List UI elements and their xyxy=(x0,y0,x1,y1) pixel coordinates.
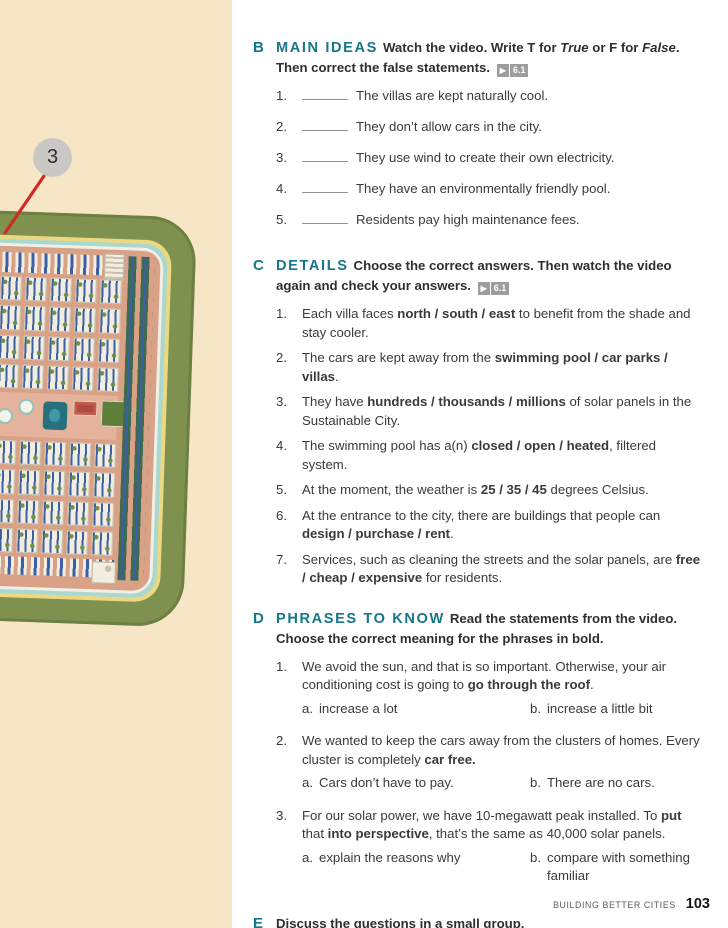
option-b[interactable]: b.There are no cars. xyxy=(530,774,702,793)
villa-cluster xyxy=(98,338,120,363)
option-a[interactable]: a.Cars don’t have to pay. xyxy=(302,774,530,793)
sports-court-icon xyxy=(73,400,98,416)
item-number: 6. xyxy=(276,507,302,544)
map-corner-building xyxy=(91,561,116,584)
biodome-icon xyxy=(0,408,13,425)
option-a[interactable]: a.increase a lot xyxy=(302,700,530,719)
options-row: a.explain the reasons why b.compare with… xyxy=(302,849,702,886)
true-false-item: 1. The villas are kept naturally cool. xyxy=(276,87,702,106)
answer-blank[interactable] xyxy=(302,151,348,162)
map-interior xyxy=(0,245,161,591)
item-statement: We avoid the sun, and that is so importa… xyxy=(302,659,666,693)
options-row: a.increase a lot b.increase a little bit xyxy=(302,700,702,719)
true-false-item: 5. Residents pay high maintenance fees. xyxy=(276,211,702,230)
villa-cluster xyxy=(19,441,41,466)
item-text: They have hundreds / thousands / million… xyxy=(302,393,702,430)
villa-cluster xyxy=(66,530,88,555)
illustration-panel: 3 xyxy=(0,0,232,928)
villa-cluster xyxy=(68,472,90,497)
play-icon: ▶ xyxy=(497,64,509,77)
multiple-choice-item: 6. At the entrance to the city, there ar… xyxy=(276,507,702,544)
item-text: At the moment, the weather is 25 / 35 / … xyxy=(302,481,702,500)
true-false-item: 4. They have an environmentally friendly… xyxy=(276,180,702,199)
villa-cluster xyxy=(99,309,121,334)
answer-blank[interactable] xyxy=(302,182,348,193)
item-text: They don’t allow cars in the city. xyxy=(356,119,542,134)
answer-blank[interactable] xyxy=(302,213,348,224)
villa-grid-bottom xyxy=(0,439,116,556)
phrase-item: 2. We wanted to keep the cars away from … xyxy=(276,732,702,802)
item-number: 2. xyxy=(276,732,302,802)
item-text: The cars are kept away from the swimming… xyxy=(302,349,702,386)
option-b[interactable]: b.compare with something familiar xyxy=(530,849,702,886)
sustainable-city-map xyxy=(0,209,197,628)
true-false-item: 2. They don’t allow cars in the city. xyxy=(276,118,702,137)
item-number: 4. xyxy=(276,437,302,474)
villa-cluster xyxy=(94,443,116,468)
item-text: They use wind to create their own electr… xyxy=(356,150,615,165)
section-letter: B xyxy=(253,38,276,256)
item-number: 4. xyxy=(276,180,302,199)
answer-blank[interactable] xyxy=(302,120,348,131)
villa-cluster xyxy=(75,278,97,303)
item-text: They have an environmentally friendly po… xyxy=(356,181,610,196)
option-b[interactable]: b.increase a little bit xyxy=(530,700,702,719)
section-instructions: Discuss the questions in a small group. xyxy=(276,916,524,928)
textbook-page: 3 B MAIN IDEASWatch the video. Write T f… xyxy=(0,0,728,928)
villa-cluster xyxy=(0,305,21,330)
map-gate-building xyxy=(104,253,125,280)
villa-cluster xyxy=(49,307,71,332)
villa-cluster xyxy=(0,498,14,523)
villa-cluster xyxy=(24,306,46,331)
villa-cluster xyxy=(69,442,91,467)
phrase-item: 3. For our solar power, we have 10-megaw… xyxy=(276,807,702,895)
villa-cluster xyxy=(43,471,65,496)
villa-cluster xyxy=(0,276,22,301)
item-number: 5. xyxy=(276,211,302,230)
item-number: 1. xyxy=(276,87,302,106)
item-statement: We wanted to keep the cars away from the… xyxy=(302,733,700,767)
villa-cluster xyxy=(16,528,38,553)
item-number: 1. xyxy=(276,305,302,342)
villa-cluster xyxy=(0,527,13,552)
item-number: 3. xyxy=(276,807,302,895)
section-d-phrases-to-know: D PHRASES TO KNOWRead the statements fro… xyxy=(253,609,702,914)
villa-cluster xyxy=(74,308,96,333)
villa-grid-top xyxy=(0,275,122,392)
villa-cluster xyxy=(48,336,70,361)
villa-cluster xyxy=(44,441,66,466)
villa-cluster xyxy=(23,335,45,360)
video-number: 6.1 xyxy=(491,282,510,295)
section-letter: C xyxy=(253,256,276,609)
item-number: 1. xyxy=(276,658,302,728)
item-text: Each villa faces north / south / east to… xyxy=(302,305,702,342)
villa-cluster xyxy=(18,470,40,495)
item-text: Residents pay high maintenance fees. xyxy=(356,212,580,227)
item-number: 2. xyxy=(276,118,302,137)
section-title: DETAILS xyxy=(276,258,349,274)
villa-cluster xyxy=(42,500,64,525)
item-number: 3. xyxy=(276,149,302,168)
section-letter: E xyxy=(253,914,276,928)
map-amenity-band xyxy=(0,391,118,440)
true-false-item: 3. They use wind to create their own ele… xyxy=(276,149,702,168)
villa-cluster xyxy=(0,440,16,465)
phrase-item: 1. We avoid the sun, and that is so impo… xyxy=(276,658,702,728)
section-b-main-ideas: B MAIN IDEASWatch the video. Write T for… xyxy=(253,38,702,256)
villa-cluster xyxy=(91,531,113,556)
multiple-choice-item: 7. Services, such as cleaning the street… xyxy=(276,551,702,588)
villa-cluster xyxy=(22,364,44,389)
play-icon: ▶ xyxy=(478,282,490,295)
map-tree-buffer-strips xyxy=(117,256,154,581)
section-title: PHRASES TO KNOW xyxy=(276,611,445,627)
villa-cluster xyxy=(17,499,39,524)
item-number: 3. xyxy=(276,393,302,430)
section-c-details: C DETAILSChoose the correct answers. The… xyxy=(253,256,702,609)
multiple-choice-item: 2. The cars are kept away from the swimm… xyxy=(276,349,702,386)
answer-blank[interactable] xyxy=(302,89,348,100)
video-badge: ▶ 6.1 xyxy=(497,64,529,77)
section-title: MAIN IDEAS xyxy=(276,40,378,56)
section-e-discussion: E Discuss the questions in a small group… xyxy=(253,914,702,928)
video-number: 6.1 xyxy=(510,64,529,77)
item-text: At the entrance to the city, there are b… xyxy=(302,507,702,544)
multiple-choice-item: 1. Each villa faces north / south / east… xyxy=(276,305,702,342)
biodome-icon xyxy=(18,399,35,416)
villa-cluster xyxy=(41,529,63,554)
options-row: a.Cars don’t have to pay. b.There are no… xyxy=(302,774,702,793)
callout-number-badge: 3 xyxy=(33,138,72,177)
villa-cluster xyxy=(25,277,47,302)
villa-cluster xyxy=(72,366,94,391)
page-number: 103 xyxy=(686,896,710,912)
multiple-choice-item: 3. They have hundreds / thousands / mill… xyxy=(276,393,702,430)
villa-cluster xyxy=(0,469,15,494)
item-text: Services, such as cleaning the streets a… xyxy=(302,551,702,588)
page-footer: BUILDING BETTER CITIES 103 xyxy=(553,896,710,912)
villa-cluster xyxy=(67,501,89,526)
multiple-choice-item: 4. The swimming pool has a(n) closed / o… xyxy=(276,437,702,474)
villa-cluster xyxy=(0,334,20,359)
item-statement: For our solar power, we have 10-megawatt… xyxy=(302,808,681,842)
option-a[interactable]: a.explain the reasons why xyxy=(302,849,530,886)
callout-number: 3 xyxy=(47,146,58,169)
item-number: 7. xyxy=(276,551,302,588)
villa-cluster xyxy=(0,364,19,389)
swimming-pool-icon xyxy=(43,401,68,430)
multiple-choice-item: 5. At the moment, the weather is 25 / 35… xyxy=(276,481,702,500)
villa-cluster xyxy=(92,502,114,527)
villa-cluster xyxy=(100,279,122,304)
villa-cluster xyxy=(47,365,69,390)
villa-cluster xyxy=(50,278,72,303)
item-text: The villas are kept naturally cool. xyxy=(356,88,548,103)
video-badge: ▶ 6.1 xyxy=(478,282,510,295)
villa-cluster xyxy=(97,367,119,392)
section-letter: D xyxy=(253,609,276,914)
item-text: The swimming pool has a(n) closed / open… xyxy=(302,437,702,474)
unit-title: BUILDING BETTER CITIES xyxy=(553,900,676,910)
villa-cluster xyxy=(73,337,95,362)
item-number: 2. xyxy=(276,349,302,386)
villa-cluster xyxy=(93,472,115,497)
exercise-content: B MAIN IDEASWatch the video. Write T for… xyxy=(232,0,728,928)
item-number: 5. xyxy=(276,481,302,500)
